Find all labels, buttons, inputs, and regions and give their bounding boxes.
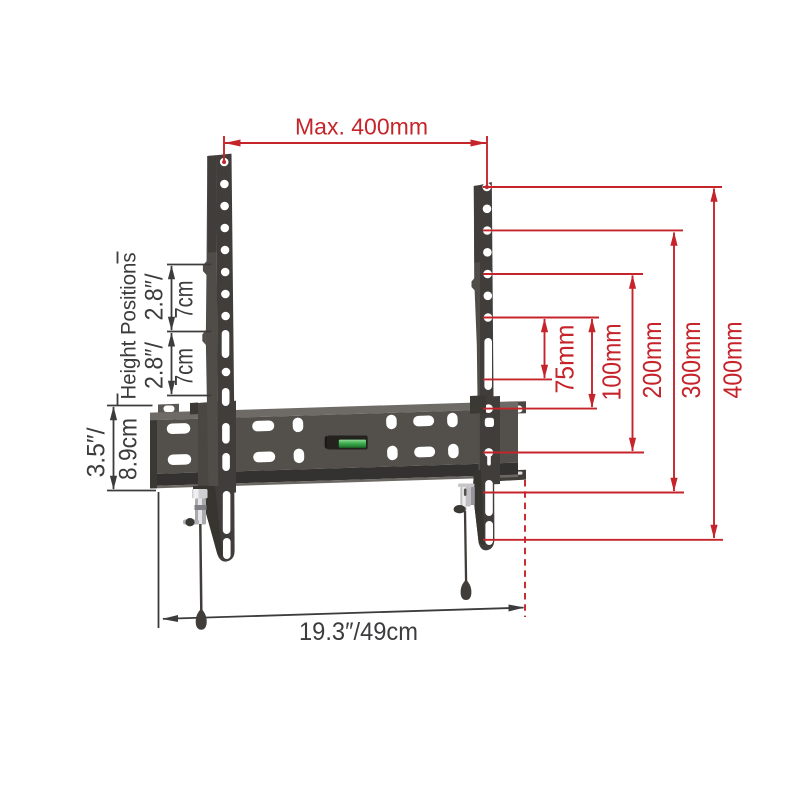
svg-text:3.5″/: 3.5″/ — [83, 427, 111, 477]
svg-text:19.3″/49cm: 19.3″/49cm — [299, 618, 418, 646]
svg-text:8.9cm: 8.9cm — [115, 418, 143, 480]
svg-text:7cm: 7cm — [171, 281, 199, 319]
svg-text:Max. 400mm: Max. 400mm — [295, 114, 428, 140]
svg-text:300mm: 300mm — [676, 322, 706, 399]
svg-text:200mm: 200mm — [637, 322, 667, 399]
svg-text:Height Positions: Height Positions — [117, 253, 141, 400]
svg-text:7cm: 7cm — [171, 348, 199, 386]
svg-text:400mm: 400mm — [718, 322, 748, 399]
svg-text:75mm: 75mm — [550, 325, 580, 394]
svg-text:100mm: 100mm — [597, 324, 627, 401]
svg-text:2.8″/: 2.8″/ — [141, 342, 169, 389]
svg-text:2.8″/: 2.8″/ — [141, 273, 169, 320]
